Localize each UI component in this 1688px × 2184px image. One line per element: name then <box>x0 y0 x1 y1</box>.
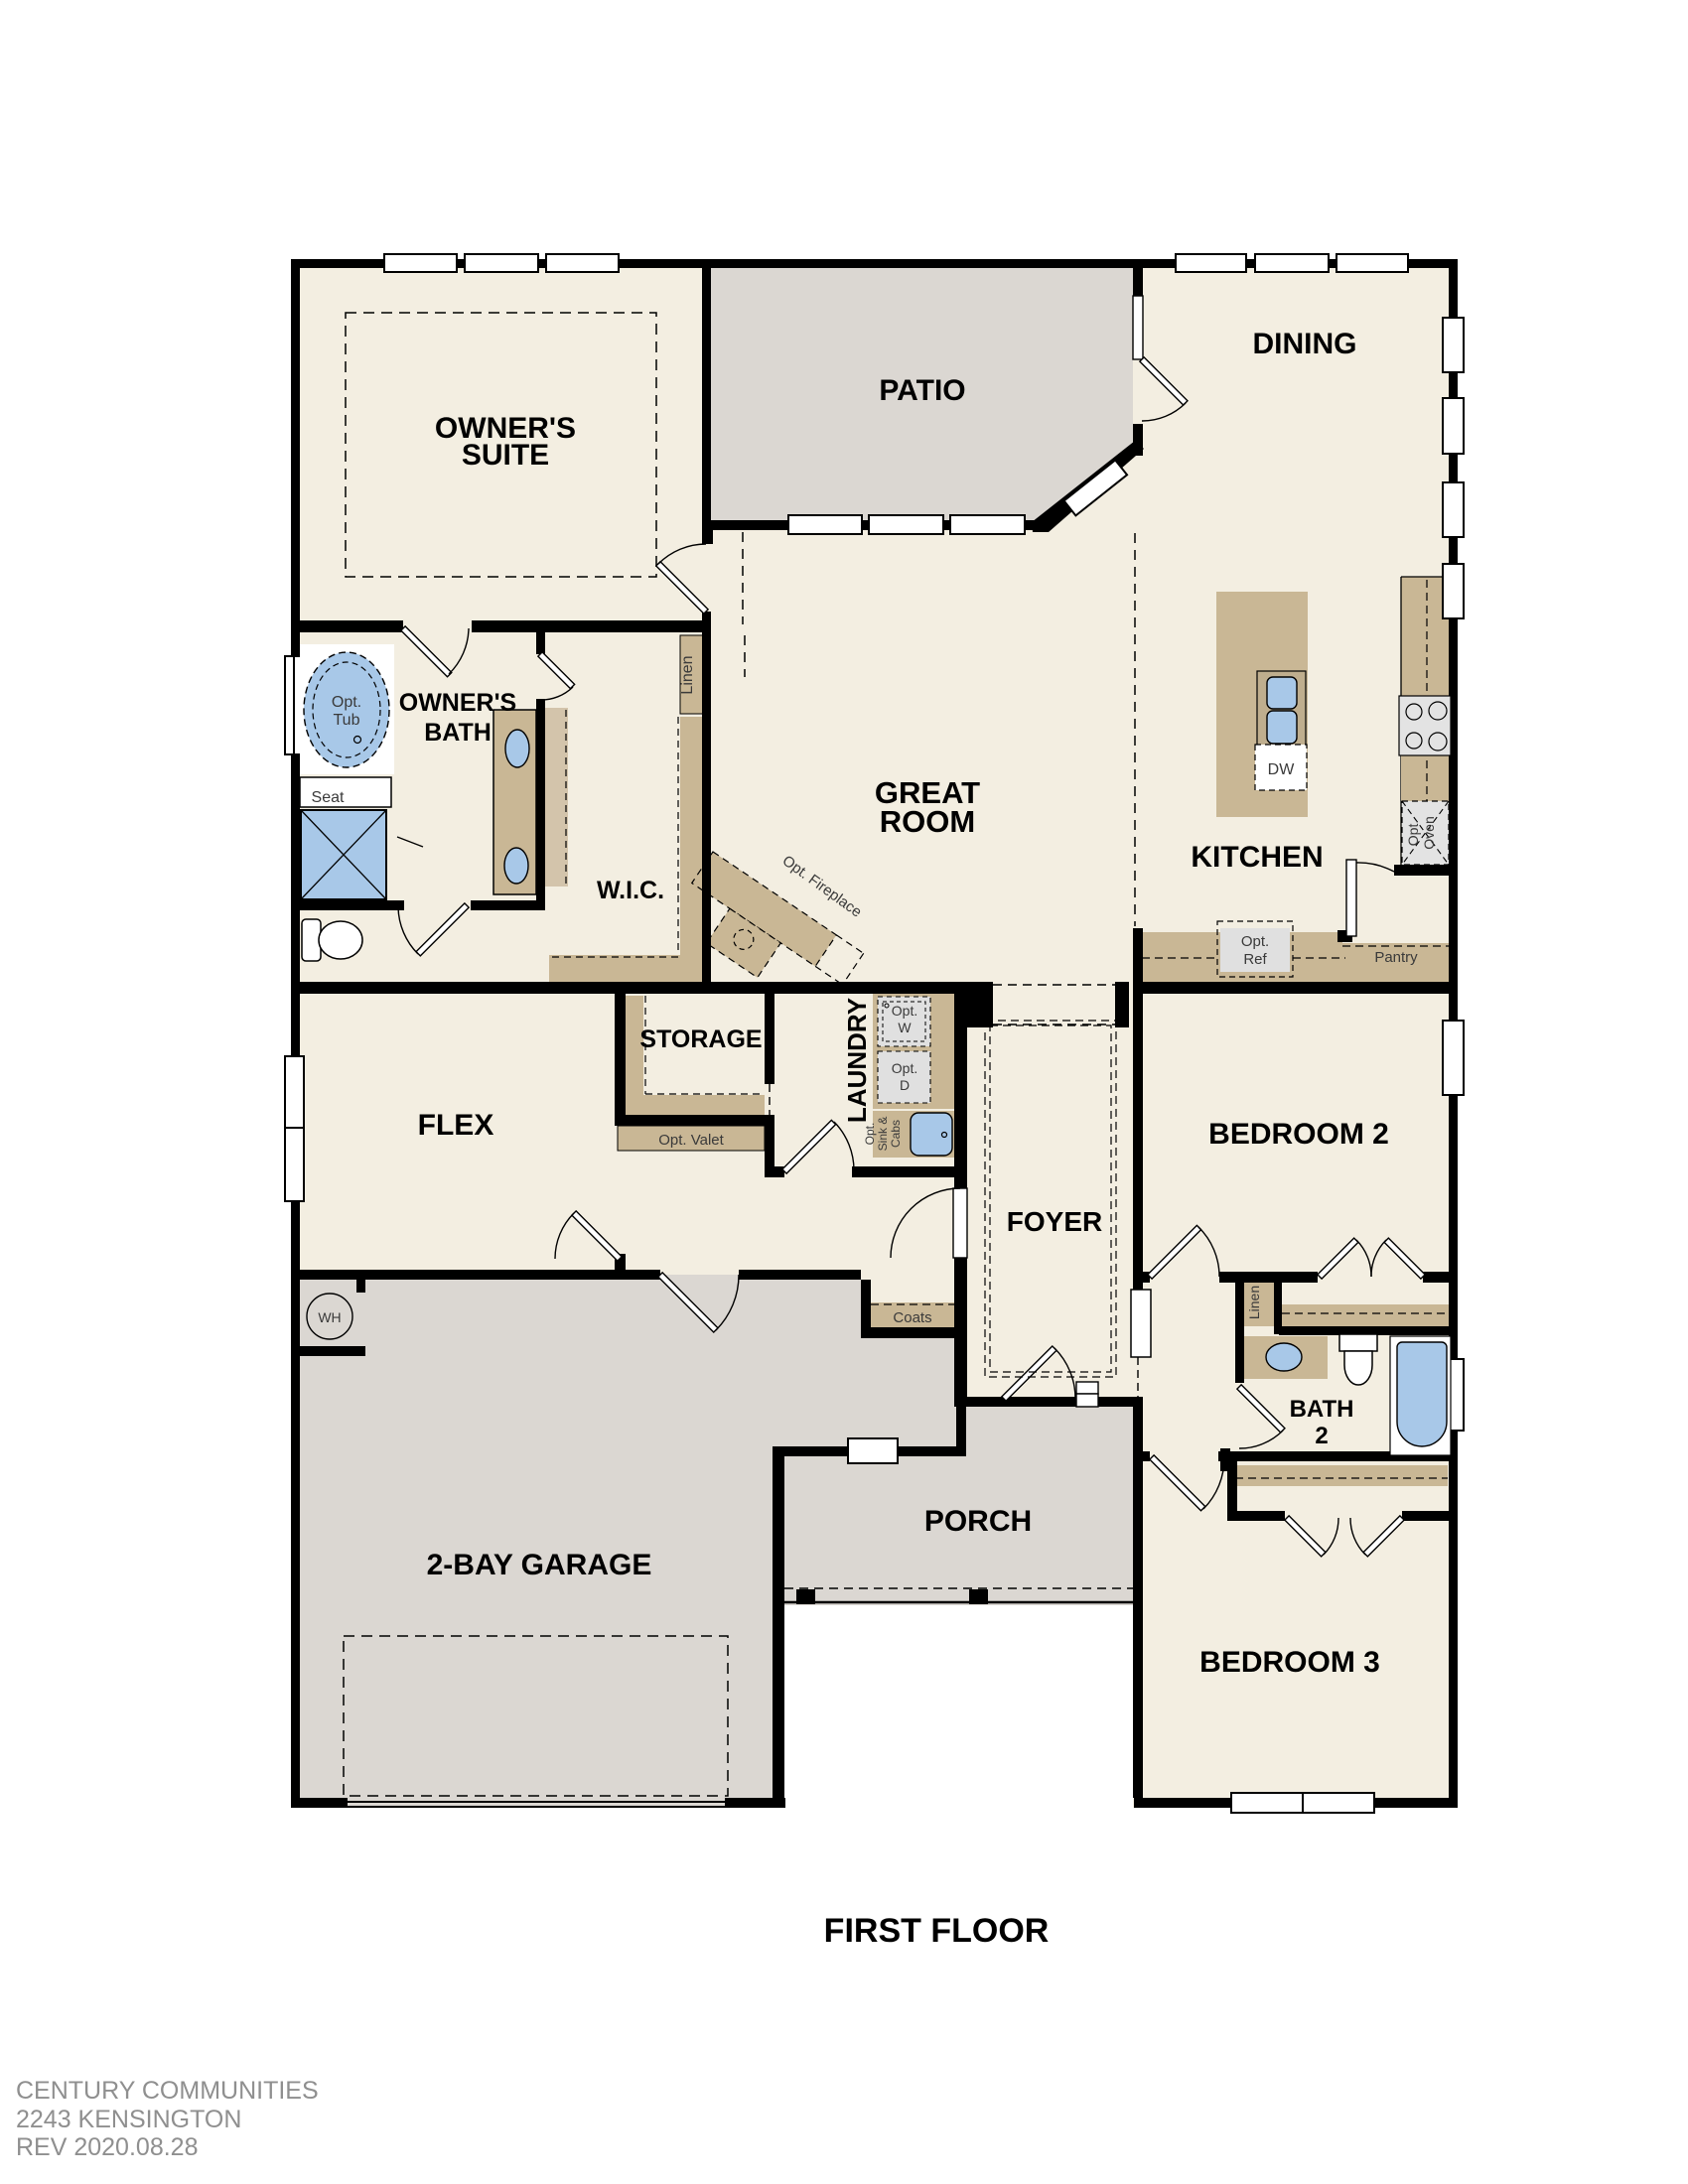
svg-text:Opt.: Opt. <box>863 1123 877 1146</box>
svg-text:BEDROOM 3: BEDROOM 3 <box>1199 1646 1380 1679</box>
svg-text:Oven: Oven <box>1421 816 1437 849</box>
svg-text:W.I.C.: W.I.C. <box>597 877 664 904</box>
svg-text:BATH: BATH <box>1290 1396 1354 1423</box>
svg-text:2: 2 <box>1315 1423 1328 1449</box>
svg-text:SUITE: SUITE <box>462 439 549 472</box>
svg-text:Opt. Valet: Opt. Valet <box>658 1132 724 1149</box>
svg-text:Opt.: Opt. <box>892 1003 917 1019</box>
svg-text:WH: WH <box>318 1309 341 1325</box>
svg-text:Sink &: Sink & <box>876 1117 890 1152</box>
svg-text:STORAGE: STORAGE <box>639 1025 762 1053</box>
svg-text:Opt.: Opt. <box>1405 820 1421 846</box>
svg-text:Coats: Coats <box>893 1309 931 1326</box>
svg-text:Seat: Seat <box>312 789 345 806</box>
svg-text:CENTURY COMMUNITIES: CENTURY COMMUNITIES <box>16 2077 319 2105</box>
svg-text:KITCHEN: KITCHEN <box>1191 841 1323 874</box>
svg-text:PORCH: PORCH <box>924 1505 1032 1538</box>
svg-text:BATH: BATH <box>424 719 492 747</box>
svg-text:BEDROOM 2: BEDROOM 2 <box>1208 1118 1389 1151</box>
svg-text:Pantry: Pantry <box>1374 949 1418 966</box>
svg-text:Linen: Linen <box>679 655 696 694</box>
svg-text:PATIO: PATIO <box>879 374 965 407</box>
svg-text:Opt.: Opt. <box>1241 933 1269 950</box>
svg-text:FLEX: FLEX <box>418 1109 494 1142</box>
svg-text:2243 KENSINGTON: 2243 KENSINGTON <box>16 2106 241 2133</box>
svg-text:Cabs: Cabs <box>889 1120 903 1148</box>
svg-text:ROOM: ROOM <box>880 804 975 839</box>
svg-text:FIRST FLOOR: FIRST FLOOR <box>824 1912 1050 1950</box>
svg-text:Opt.: Opt. <box>332 694 361 711</box>
svg-text:DW: DW <box>1268 761 1296 778</box>
svg-text:REV 2020.08.28: REV 2020.08.28 <box>16 2133 198 2161</box>
svg-text:LAUNDRY: LAUNDRY <box>842 998 872 1123</box>
svg-text:Linen: Linen <box>1246 1286 1262 1319</box>
svg-text:Ref: Ref <box>1243 951 1267 968</box>
svg-text:2-BAY GARAGE: 2-BAY GARAGE <box>427 1549 652 1581</box>
svg-text:Tub: Tub <box>334 712 360 729</box>
svg-text:W: W <box>898 1020 912 1035</box>
svg-text:Opt.: Opt. <box>892 1060 917 1076</box>
svg-text:OWNER'S: OWNER'S <box>399 689 516 717</box>
svg-text:D: D <box>900 1077 910 1093</box>
svg-text:FOYER: FOYER <box>1007 1206 1102 1237</box>
svg-text:DINING: DINING <box>1253 328 1357 360</box>
